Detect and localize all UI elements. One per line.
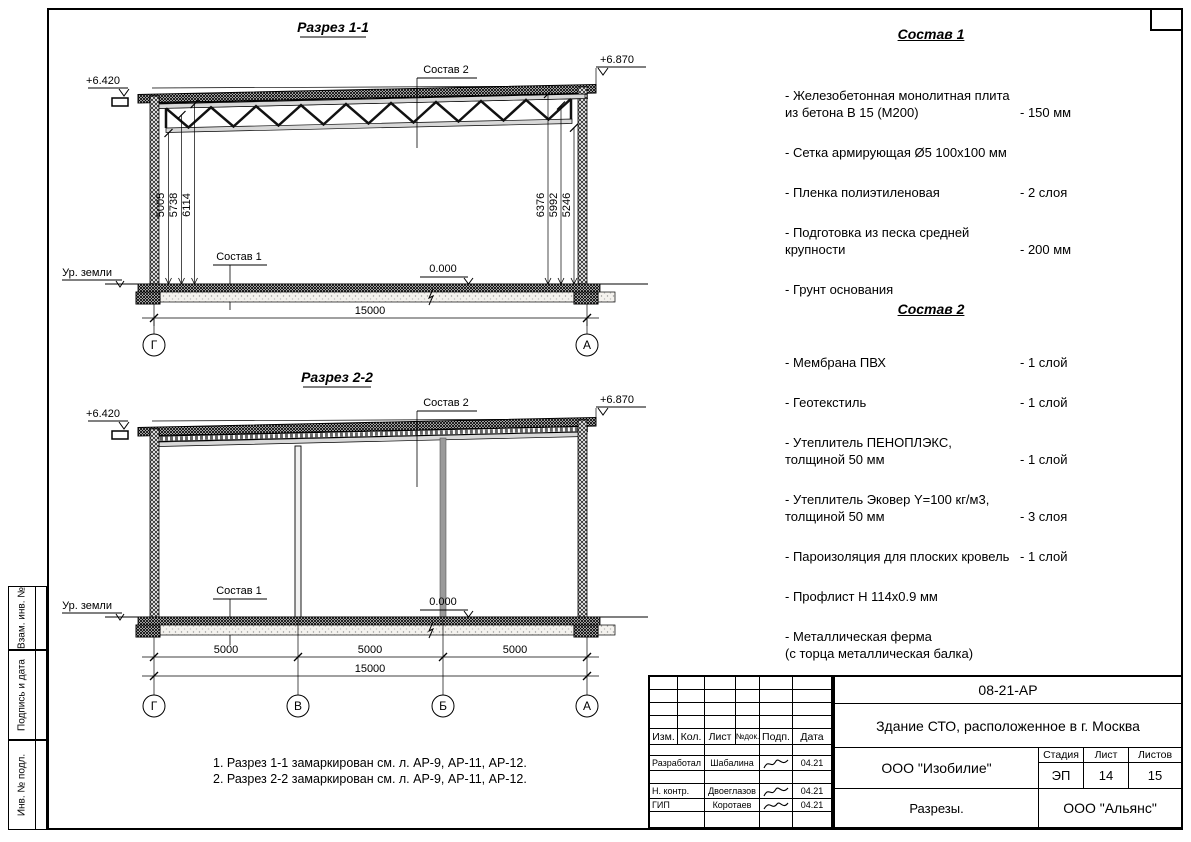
svg-text:+6.870: +6.870 bbox=[600, 394, 634, 406]
list-item: - Сетка армирующая Ø5 100х100 мм bbox=[785, 144, 1077, 161]
dim-height: 5738 bbox=[168, 193, 180, 217]
section-2-title: Разрез 2-2 bbox=[301, 369, 373, 385]
wall-right bbox=[578, 87, 587, 284]
item-text: - Пароизоляция для плоских кровель bbox=[785, 548, 1020, 565]
stage-value: ЭП bbox=[1039, 763, 1084, 789]
list-item: - Пленка полиэтиленовая - 2 слоя bbox=[785, 184, 1077, 201]
total-dim-s2: 15000 bbox=[142, 663, 599, 680]
sand-layer bbox=[145, 292, 615, 302]
notes: 1. Разрез 1-1 замаркирован см. л. АР-9, … bbox=[213, 755, 527, 787]
dim-span: 5000 bbox=[358, 644, 382, 656]
floor-slab bbox=[138, 617, 600, 625]
eaves-flashing bbox=[112, 98, 128, 106]
svg-text:+6.420: +6.420 bbox=[86, 75, 120, 87]
sheet-label: Лист bbox=[1084, 748, 1129, 763]
item-text: крупности bbox=[785, 241, 1020, 258]
section-2-drawing: Разрез 2-2 +6.420 +6.870 bbox=[62, 369, 648, 717]
item-text: - Утеплитель ПЕНОПЛЭКС, bbox=[785, 434, 1020, 451]
dim-height: 5005 bbox=[155, 193, 167, 217]
item-text: - Железобетонная монолитная плита bbox=[785, 87, 1020, 104]
section-1-drawing: Разрез 1-1 +6.420 +6.870 bbox=[62, 19, 648, 356]
dim-span: 5000 bbox=[214, 644, 238, 656]
sign-role: ГИП bbox=[650, 799, 705, 812]
titleblock-main: 08-21-АР Здание СТО, расположенное в г. … bbox=[833, 675, 1183, 829]
signature-scribble bbox=[762, 799, 790, 812]
item-text: - Профлист Н 114х0.9 мм bbox=[785, 588, 1020, 605]
list-item: - Мембрана ПВХ - 1 слой bbox=[785, 354, 1077, 371]
dim-total: 15000 bbox=[355, 305, 386, 317]
sign-name: Двоеглазов bbox=[705, 784, 760, 799]
zero-level-mark: 0.000 bbox=[420, 596, 473, 617]
item-value: - 2 слоя bbox=[1020, 184, 1077, 201]
sostav1-title: Состав 1 bbox=[785, 26, 1077, 43]
signature-scribble bbox=[762, 785, 790, 798]
item-text: - Мембрана ПВХ bbox=[785, 354, 1020, 371]
sand-layer bbox=[145, 625, 615, 635]
svg-text:Состав 1: Состав 1 bbox=[216, 251, 262, 263]
dim-height: 6376 bbox=[535, 193, 547, 217]
item-text: - Металлическая ферма bbox=[785, 628, 1020, 645]
sign-role: Н. контр. bbox=[650, 784, 705, 799]
sheet-number: 14 bbox=[1084, 763, 1129, 789]
item-value: - 200 мм bbox=[1020, 241, 1077, 258]
list-item: - Профлист Н 114х0.9 мм bbox=[785, 588, 1077, 605]
signature bbox=[760, 756, 793, 771]
axis-letter: Б bbox=[439, 699, 447, 713]
axis-letter: А bbox=[583, 338, 591, 352]
list-item: - Геотекстиль - 1 слой bbox=[785, 394, 1077, 411]
list-item: - Утеплитель ПЕНОПЛЭКС,толщиной 50 мм - … bbox=[785, 434, 1077, 468]
sheets-total: 15 bbox=[1129, 763, 1181, 789]
org-name: ООО "Изобилие" bbox=[835, 748, 1039, 789]
list-item: - Утеплитель Эковер Y=100 кг/м3,толщиной… bbox=[785, 491, 1077, 525]
project-title: Здание СТО, расположенное в г. Москва bbox=[835, 704, 1181, 748]
section-1-title: Разрез 1-1 bbox=[297, 19, 369, 35]
list-item: - Грунт основания bbox=[785, 281, 1077, 298]
elevation-mark-left: +6.420 bbox=[86, 408, 129, 429]
svg-text:Ур. земли: Ур. земли bbox=[62, 267, 112, 279]
foundation-right bbox=[574, 625, 598, 637]
note-line: 2. Разрез 2-2 замаркирован см. л. АР-9, … bbox=[213, 771, 527, 787]
item-text: - Утеплитель Эковер Y=100 кг/м3, bbox=[785, 491, 1020, 508]
svg-text:Состав 2: Состав 2 bbox=[423, 64, 469, 76]
floor-slab bbox=[138, 284, 600, 292]
svg-text:+6.420: +6.420 bbox=[86, 408, 120, 420]
column-axis-v bbox=[295, 446, 301, 617]
org2-name: ООО "Альянс" bbox=[1039, 789, 1181, 827]
svg-text:0.000: 0.000 bbox=[429, 263, 457, 275]
signature bbox=[760, 784, 793, 799]
titleblock-header-list: Лист bbox=[705, 729, 736, 745]
item-text: толщиной 50 мм bbox=[785, 451, 1020, 468]
svg-text:0.000: 0.000 bbox=[429, 596, 457, 608]
sostav2-callout: Состав 2 bbox=[417, 397, 477, 487]
axis-letter: Г bbox=[151, 699, 158, 713]
stage-label: Стадия bbox=[1039, 748, 1084, 763]
dim-span: 5000 bbox=[503, 644, 527, 656]
item-value: - 150 мм bbox=[1020, 104, 1077, 121]
axis-letter: Г bbox=[151, 338, 158, 352]
axis-letter: В bbox=[294, 699, 302, 713]
eaves-flashing bbox=[112, 431, 128, 439]
svg-text:Состав 1: Состав 1 bbox=[216, 585, 262, 597]
sheets-label: Листов bbox=[1129, 748, 1181, 763]
svg-text:+6.870: +6.870 bbox=[600, 54, 634, 66]
signature-scribble bbox=[762, 757, 790, 770]
svg-text:Состав 2: Состав 2 bbox=[423, 397, 469, 409]
item-text: (с торца металлическая балка) bbox=[785, 645, 1020, 662]
sign-name: Шабалина bbox=[705, 756, 760, 771]
sostav2-callout: Состав 2 bbox=[417, 64, 477, 148]
foundation-right bbox=[574, 292, 598, 304]
sign-role: Разработал bbox=[650, 756, 705, 771]
list-item: - Пароизоляция для плоских кровель - 1 с… bbox=[785, 548, 1077, 565]
drawing-sheet: Взам. инв. № Подпись и дата Инв. № подл. bbox=[0, 0, 1191, 842]
sign-date: 04.21 bbox=[793, 756, 831, 771]
column-axis-b bbox=[440, 438, 446, 617]
dim-total: 15000 bbox=[355, 663, 386, 675]
item-text: - Подготовка из песка средней bbox=[785, 224, 1020, 241]
dim-height: 6114 bbox=[181, 193, 193, 217]
dim-height: 5992 bbox=[548, 193, 560, 217]
item-value: - 1 слой bbox=[1020, 354, 1077, 371]
titleblock-revision-table: Изм. Кол. Лист №док. Подп. Дата Разработ… bbox=[648, 675, 833, 829]
signature bbox=[760, 799, 793, 812]
doc-number: 08-21-АР bbox=[835, 677, 1181, 704]
item-value: - 1 слой bbox=[1020, 394, 1077, 411]
item-text: из бетона В 15 (М200) bbox=[785, 104, 1020, 121]
wall-left bbox=[150, 429, 159, 617]
list-item: - Металлическая ферма(с торца металличес… bbox=[785, 628, 1077, 662]
foundation-left bbox=[136, 625, 160, 637]
foundation-left bbox=[136, 292, 160, 304]
zero-level-mark: 0.000 bbox=[420, 263, 473, 284]
dim-height: 5246 bbox=[561, 193, 573, 217]
sign-name: Коротаев bbox=[705, 799, 760, 812]
elevation-mark-right: +6.870 bbox=[596, 394, 646, 415]
wall-left bbox=[150, 96, 159, 284]
item-text: - Грунт основания bbox=[785, 281, 1020, 298]
item-text: - Геотекстиль bbox=[785, 394, 1020, 411]
titleblock-cell bbox=[650, 677, 678, 690]
axis-letter: А bbox=[583, 699, 591, 713]
sostav2-panel: Состав 2 - Мембрана ПВХ - 1 слой - Геоте… bbox=[785, 301, 1077, 685]
item-value: - 1 слой bbox=[1020, 451, 1077, 468]
sign-date: 04.21 bbox=[793, 784, 831, 799]
note-line: 1. Разрез 1-1 замаркирован см. л. АР-9, … bbox=[213, 755, 527, 771]
list-item: - Железобетонная монолитная плитаиз бето… bbox=[785, 87, 1077, 121]
total-dim-s1: 15000 bbox=[142, 304, 599, 326]
sheet-title: Разрезы. bbox=[835, 789, 1039, 827]
item-text: - Пленка полиэтиленовая bbox=[785, 184, 1020, 201]
item-value: - 3 слоя bbox=[1020, 508, 1077, 525]
titleblock-header-podp: Подп. bbox=[760, 729, 793, 745]
elevation-mark-right: +6.870 bbox=[596, 54, 646, 75]
sostav1-callout: Состав 1 bbox=[213, 585, 267, 645]
list-item: - Подготовка из песка среднейкрупности -… bbox=[785, 224, 1077, 258]
titleblock-header-izm: Изм. bbox=[650, 729, 678, 745]
titleblock-header-kol: Кол. bbox=[678, 729, 705, 745]
item-text: - Сетка армирующая Ø5 100х100 мм bbox=[785, 144, 1020, 161]
sign-date: 04.21 bbox=[793, 799, 831, 812]
sostav2-title: Состав 2 bbox=[785, 301, 1077, 318]
titleblock-header-ndok: №док. bbox=[736, 729, 760, 745]
item-text: толщиной 50 мм bbox=[785, 508, 1020, 525]
wall-right bbox=[578, 420, 587, 617]
item-value: - 1 слой bbox=[1020, 548, 1077, 565]
titleblock-header-data: Дата bbox=[793, 729, 831, 745]
svg-text:Ур. земли: Ур. земли bbox=[62, 600, 112, 612]
axis-bubbles-s1: Г А bbox=[143, 318, 598, 356]
sostav1-panel: Состав 1 - Железобетонная монолитная пли… bbox=[785, 26, 1077, 321]
elevation-mark-left: +6.420 bbox=[86, 75, 129, 96]
